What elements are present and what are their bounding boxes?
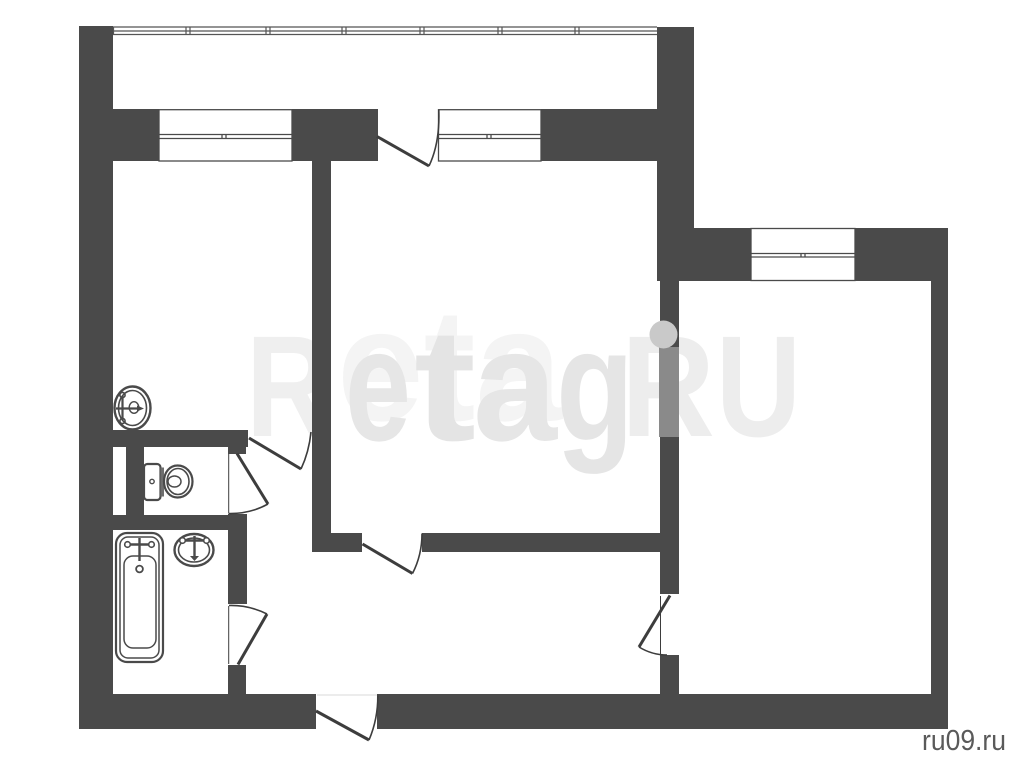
svg-text:e: e: [345, 295, 411, 474]
svg-text:ru09.ru: ru09.ru: [922, 725, 1006, 757]
svg-text:t: t: [414, 295, 476, 474]
svg-text:U: U: [716, 306, 801, 467]
svg-text:a: a: [473, 295, 558, 474]
